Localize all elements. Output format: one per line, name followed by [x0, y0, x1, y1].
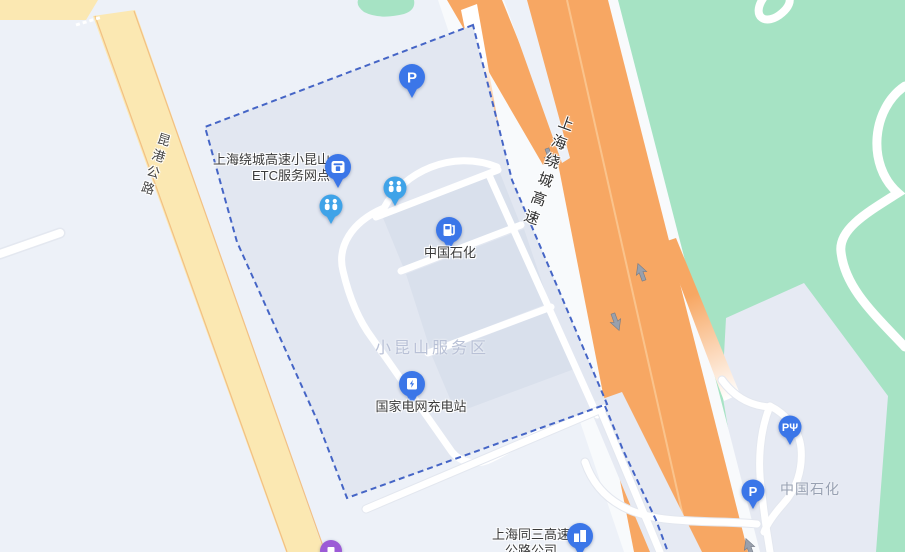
parking-icon: P — [407, 70, 417, 87]
etc-outlet-label-line1: 上海绕城高速小昆山 — [213, 152, 330, 168]
etc-icon — [332, 161, 345, 173]
tongsan-company-pin[interactable] — [565, 521, 595, 552]
tongsan-label-line1: 上海同三高速 — [492, 527, 570, 543]
etc-outlet-label[interactable]: 上海绕城高速小昆山 ETC服务网点 — [213, 152, 330, 184]
ring-expressway-label: 上海绕城高速 — [517, 112, 578, 232]
restroom-pin-1[interactable] — [382, 175, 408, 209]
etc-outlet-pin[interactable] — [323, 152, 353, 192]
parking-icon: P — [749, 484, 758, 499]
charging-icon — [407, 378, 417, 390]
kungang-road-label: 昆港公路 — [135, 130, 174, 201]
parking-fuel-icon: PΨ — [782, 422, 798, 434]
map-canvas[interactable]: 上海绕城高速 昆港公路 小昆山服务区 中国石化 上海绕城高速小昆山 ETC服务网… — [0, 0, 905, 552]
label-overlay: 上海绕城高速 昆港公路 小昆山服务区 中国石化 上海绕城高速小昆山 ETC服务网… — [0, 0, 905, 552]
charging-station-label[interactable]: 国家电网充电站 — [375, 399, 466, 415]
restroom-pin-2[interactable] — [318, 193, 344, 227]
transit-icon — [328, 547, 335, 552]
parking-fuel-pin[interactable]: PΨ — [777, 414, 803, 448]
sinopec-gas-label[interactable]: 中国石化 — [424, 245, 476, 261]
service-area-label: 小昆山服务区 — [375, 334, 489, 358]
etc-outlet-label-line2: ETC服务网点 — [213, 168, 330, 184]
parking-pin-north[interactable]: P — [397, 62, 427, 102]
tongsan-company-label[interactable]: 上海同三高速 公路公司 — [492, 527, 570, 552]
parking-pin-east[interactable]: P — [740, 478, 766, 512]
transit-pin-purple[interactable] — [319, 539, 343, 552]
tongsan-label-line2: 公路公司 — [492, 543, 570, 552]
sinopec-area-label: 中国石化 — [780, 479, 840, 499]
